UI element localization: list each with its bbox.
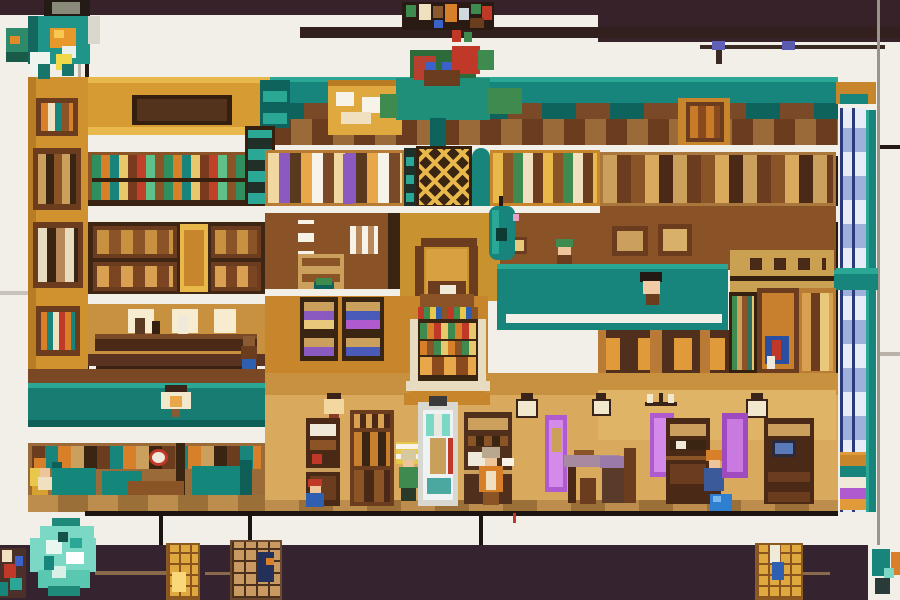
bar-char-body[interactable] [241,346,257,359]
display-shelf-1 [420,323,476,339]
row2-right2-mosaic [603,155,833,203]
cabinet-bl-food [97,266,173,287]
storefront-table [128,481,184,495]
diamond-white-1 [46,540,62,554]
char-merchant-plate [502,458,514,466]
tool-mantel-shelf [730,276,834,281]
row2-mid-pillar [343,154,353,204]
tool-mantel-tools [738,258,826,270]
floor-baseline [85,511,838,516]
diamond-dark-2 [44,556,54,570]
pendant-1-body [516,399,538,418]
bulletin-paper-3 [341,112,371,124]
white-case-strip [426,414,450,436]
panel-char-body [646,294,659,305]
shelf-a-row [310,440,336,450]
strip-hang-red [452,30,461,42]
pendant-3-body [746,399,768,418]
band-line-3 [800,572,830,575]
xcab-teal-cells [406,152,414,202]
storefront-white-stripe [28,427,265,443]
shelf-c-row2 [468,436,508,446]
bulletin-border [328,80,402,86]
white-band-tick-1 [159,513,163,545]
big-teal-panel-stripe [506,314,722,323]
white-case-red-strip [448,438,453,474]
chandelier-stem [659,393,663,403]
shelf-a-line [306,468,340,472]
gold-cluster-blue [772,562,784,580]
strip-hang-green [464,32,472,42]
strip-cell-orange [445,4,457,22]
bar-window-3 [214,309,236,333]
teal-cabinet-cells [263,84,287,124]
roof-crate [424,70,460,86]
storefront-char-head[interactable] [40,468,50,477]
white-case-cap [429,396,447,406]
white-case-teal-block [427,478,451,494]
doorway-candle [767,356,775,369]
white-stripe-3-left [88,294,265,304]
teal-lantern-core [496,228,507,241]
rail-knob-1 [712,41,725,50]
corner-br-mint [884,568,894,578]
creature-leg-1 [38,64,50,79]
bar-figure-1 [135,318,145,335]
thin-bookshelf-books [732,296,754,370]
wall-frame-b-inner [663,229,687,251]
farleft-cell-cream [2,550,12,562]
char-merchant-wrap [482,447,500,458]
diamond-white-3 [52,566,66,578]
gold-band-trim [88,127,270,135]
balcony-char-cap [556,239,573,247]
strip-cell-green-2 [471,4,481,14]
right-pillar-jars [690,106,720,138]
farleft-cell-teal [0,582,8,596]
storefront-char-body [38,477,52,490]
cabinet-right-top [768,424,810,436]
strip-cell-brown [433,6,443,18]
strip-cell-blue [434,20,443,28]
glass-column-cap-teal [840,94,868,104]
char-merchant-apron [486,471,496,490]
creature-side-light [88,16,100,44]
diamond-dark-1 [58,532,68,542]
white-band-tick-3 [479,513,483,545]
farleft-cell-red [4,564,16,578]
strip-cell-green-1 [406,5,416,17]
room-left-curtain [350,226,378,254]
display-pillar-left [410,319,418,381]
big-teal-panel-hi [497,264,728,269]
creature-companion-orange [10,36,20,44]
workstation-lower [670,464,706,484]
ornate-x-lattice [419,149,469,205]
shelf-c-row1 [468,418,508,430]
brown-grid-beak [266,558,274,565]
char-redcap-body[interactable] [306,493,324,507]
display-pillar-right [478,319,486,381]
pillar-art-1 [41,103,73,131]
strip-cell-cream [419,4,431,20]
char-green-body[interactable] [399,467,418,488]
margin-line-left-h [0,291,28,295]
jar-shelf-lower [354,470,390,502]
display-gable-2 [420,294,474,307]
arch-alcove-left [415,246,424,298]
gold-column-glow [172,572,186,592]
workstation-row1 [670,424,706,436]
chair-back [624,448,636,503]
diamond-tip-bottom [48,586,80,596]
char-merchant-legs [483,492,499,505]
bar-figure-3 [152,321,160,335]
brown-grid-figure [258,552,274,582]
pillar-art-4 [41,312,75,350]
roof-plant-leaf-r [488,88,522,114]
workstation-line [666,456,710,460]
teal-pipe-hi [866,110,869,512]
arch-alcove-right [469,246,478,298]
teal-lantern-pink [513,214,519,221]
roof-plant-leaf-l [380,94,398,118]
farleft-cell-blue [15,556,23,566]
margin-line-right-h2 [880,352,900,356]
diamond-white-2 [66,552,84,564]
sconce-glow [324,399,344,414]
display-bookrow [418,307,478,319]
shop-sign [137,99,227,121]
creature-companion-dark [6,52,28,62]
char-worker-face[interactable] [709,460,720,468]
top-beam-mid [300,27,900,38]
cabinet-tl-food [97,230,173,254]
chandelier-candle-1 [647,394,653,403]
margin-line-right-h1 [880,145,900,149]
strip-cell-brown-2 [470,18,484,28]
blue-pot-hi [713,496,721,502]
room-left-doorpost [388,213,400,301]
cabinet-right-screen [775,443,793,454]
char-green-legs [401,488,416,501]
display-case-left-2-goods [346,302,380,356]
purple-door-a-figure [552,428,561,452]
cabinet-row-pillar-3 [700,330,710,376]
wall-frame-a-inner [617,231,643,251]
pillar-art-3 [38,228,78,282]
vending-cells [840,452,866,510]
display-shelf-lit [420,357,476,375]
bar-figure-2 [178,316,188,335]
bar-step-1 [88,354,265,366]
balcony-char-face[interactable] [558,247,571,255]
storefront-floor [28,495,265,512]
pixel-art-shop-scene [0,0,900,600]
table-stool [580,478,596,504]
creature-orange-hi [54,30,64,38]
bulletin-paper-1 [336,92,354,106]
storefront-awning-shade [28,420,265,427]
white-case-mannequin [430,438,446,474]
strip-cell-grey [459,8,469,20]
cabinet-row-pillar-2 [650,330,662,376]
shelf-a-red-item [312,454,322,464]
tool-mantel [730,250,834,292]
storefront-beam [28,369,265,383]
char-merchant-face[interactable] [485,458,497,466]
roof-jar-green [478,50,494,70]
gold-band-hi [88,77,270,83]
band-line-2 [205,572,233,575]
bar-char-head [243,336,255,346]
bar-counter [95,339,257,351]
chandelier-candle-2 [668,394,674,403]
jar-shelf-jars [354,432,390,466]
row2-left-shelfline [92,178,261,182]
golden-door-inner [184,230,204,286]
display-base [406,381,490,391]
diamond-dark-3 [70,538,82,548]
creature-leg-2 [62,64,74,76]
band-line-1 [95,571,168,575]
shelf-a-lit [310,424,336,436]
storefront-awning-hi [28,383,265,388]
rail-knob-2 [782,41,795,50]
pillar-art-2 [38,154,76,204]
row2-right1-mosaic [493,153,597,203]
teal-pipe-joint-hi [832,268,878,274]
table-leg-1 [568,467,576,503]
cabinet-right-drawers [768,462,810,502]
gold-cluster-white [770,545,780,563]
awning-lamp-glow [170,396,182,407]
row2-mid-mosaic [268,153,402,203]
awning-lamp-base [172,409,180,417]
cabinet-row-pillar-1 [598,330,606,376]
creature-head-grey [52,2,80,14]
char-worker-body[interactable] [704,468,724,491]
workstation-white [676,441,686,449]
purple-door-c-inner [727,419,743,472]
panel-char-face[interactable] [643,281,660,294]
cabinet-tr-food [215,230,257,254]
pendant-2-body [592,399,611,416]
farleft-cell-mint [10,578,22,590]
display-case-left-1-goods [304,302,334,356]
balcony-char-body [557,255,572,264]
room-left-plant [316,278,332,285]
arched-teal-door[interactable] [472,148,490,208]
display-shelf-2 [420,341,476,355]
rail-tick [716,50,722,64]
storefront-clock [149,449,168,466]
corner-br-dark [875,578,890,594]
cabinet-br-food [215,266,257,287]
white-band-tick-red [513,513,516,523]
jar-shelf-top [354,414,390,428]
wall-far-right-mosaic [802,293,833,371]
